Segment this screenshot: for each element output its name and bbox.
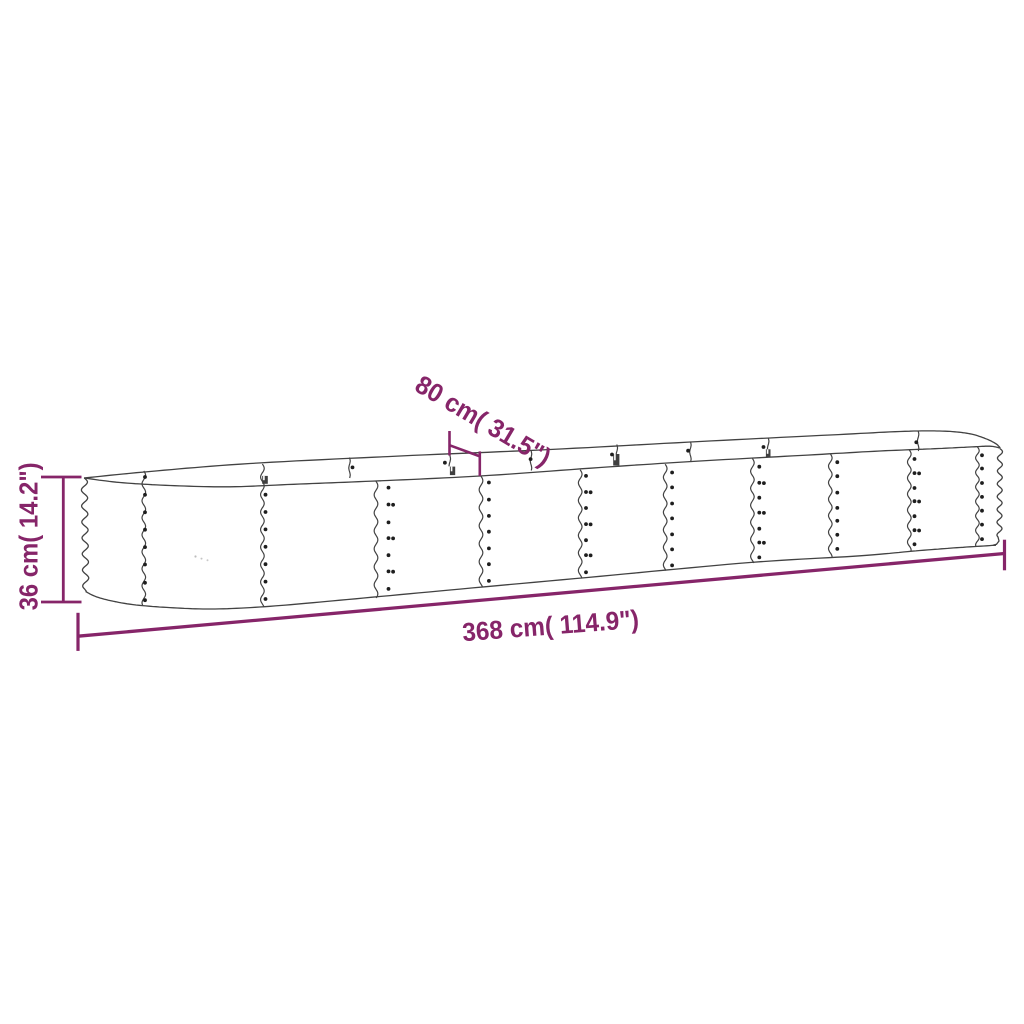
svg-text:36 cm( 14.2"): 36 cm( 14.2") (14, 462, 44, 610)
svg-text:368 cm( 114.9"): 368 cm( 114.9") (461, 604, 640, 647)
svg-text:80 cm( 31.5"): 80 cm( 31.5") (410, 369, 556, 472)
